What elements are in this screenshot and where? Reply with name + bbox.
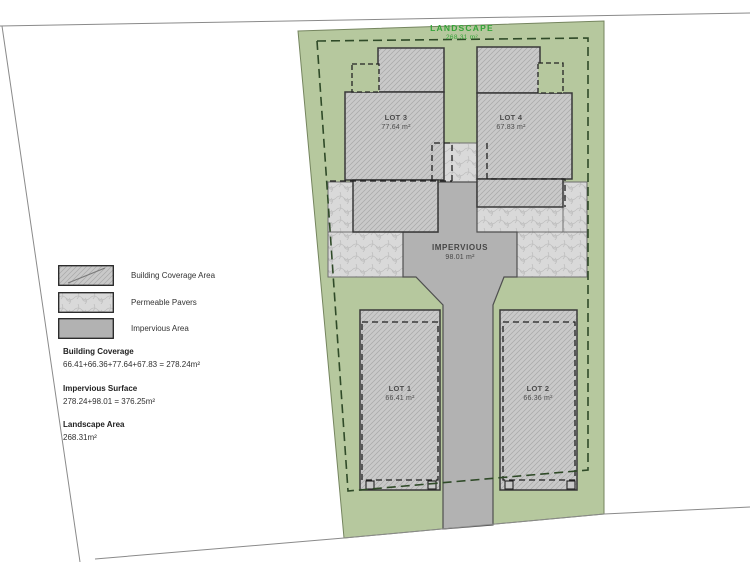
legend-label: Permeable Pavers xyxy=(131,298,197,307)
building-coverage-formula: 66.41+66.36+77.64+67.83 = 278.24m² xyxy=(63,360,200,369)
legend-label: Impervious Area xyxy=(131,324,189,333)
lot3-porch-dashed xyxy=(352,64,379,92)
lot3-building-rear xyxy=(353,180,438,232)
building-coverage-title: Building Coverage xyxy=(63,347,134,356)
permeable-pavers-swatch xyxy=(58,292,114,313)
lot4-building-rear xyxy=(477,179,563,207)
paver-zone xyxy=(444,143,477,182)
landscape-area-title: Landscape Area xyxy=(63,420,125,429)
paver-zone xyxy=(477,207,563,232)
lot3-building-main xyxy=(345,92,444,180)
paver-zone xyxy=(328,182,353,232)
legend-item-building-coverage: Building Coverage Area xyxy=(58,265,215,286)
lot4-porch-dashed xyxy=(538,63,563,93)
legend-item-permeable-pavers: Permeable Pavers xyxy=(58,292,197,313)
lot1-building xyxy=(360,310,440,490)
site-plan-sheet: LANDSCAPE 268.31 m² LOT 3 77.64 m² LOT 4… xyxy=(0,0,750,562)
paver-zone xyxy=(563,182,587,232)
building-coverage-swatch xyxy=(58,265,114,286)
lot4-building-top xyxy=(477,47,540,93)
impervious-swatch xyxy=(58,318,114,339)
paver-zone xyxy=(517,232,587,277)
impervious-surface-title: Impervious Surface xyxy=(63,384,137,393)
lot4-building-main xyxy=(477,93,572,179)
landscape-area-formula: 268.31m² xyxy=(63,433,97,442)
legend-label: Building Coverage Area xyxy=(131,271,215,280)
lot2-building xyxy=(500,310,577,490)
legend-item-impervious: Impervious Area xyxy=(58,318,189,339)
impervious-surface-formula: 278.24+98.01 = 376.25m² xyxy=(63,397,155,406)
lot3-building-top xyxy=(378,48,444,92)
paver-zone xyxy=(328,232,403,277)
